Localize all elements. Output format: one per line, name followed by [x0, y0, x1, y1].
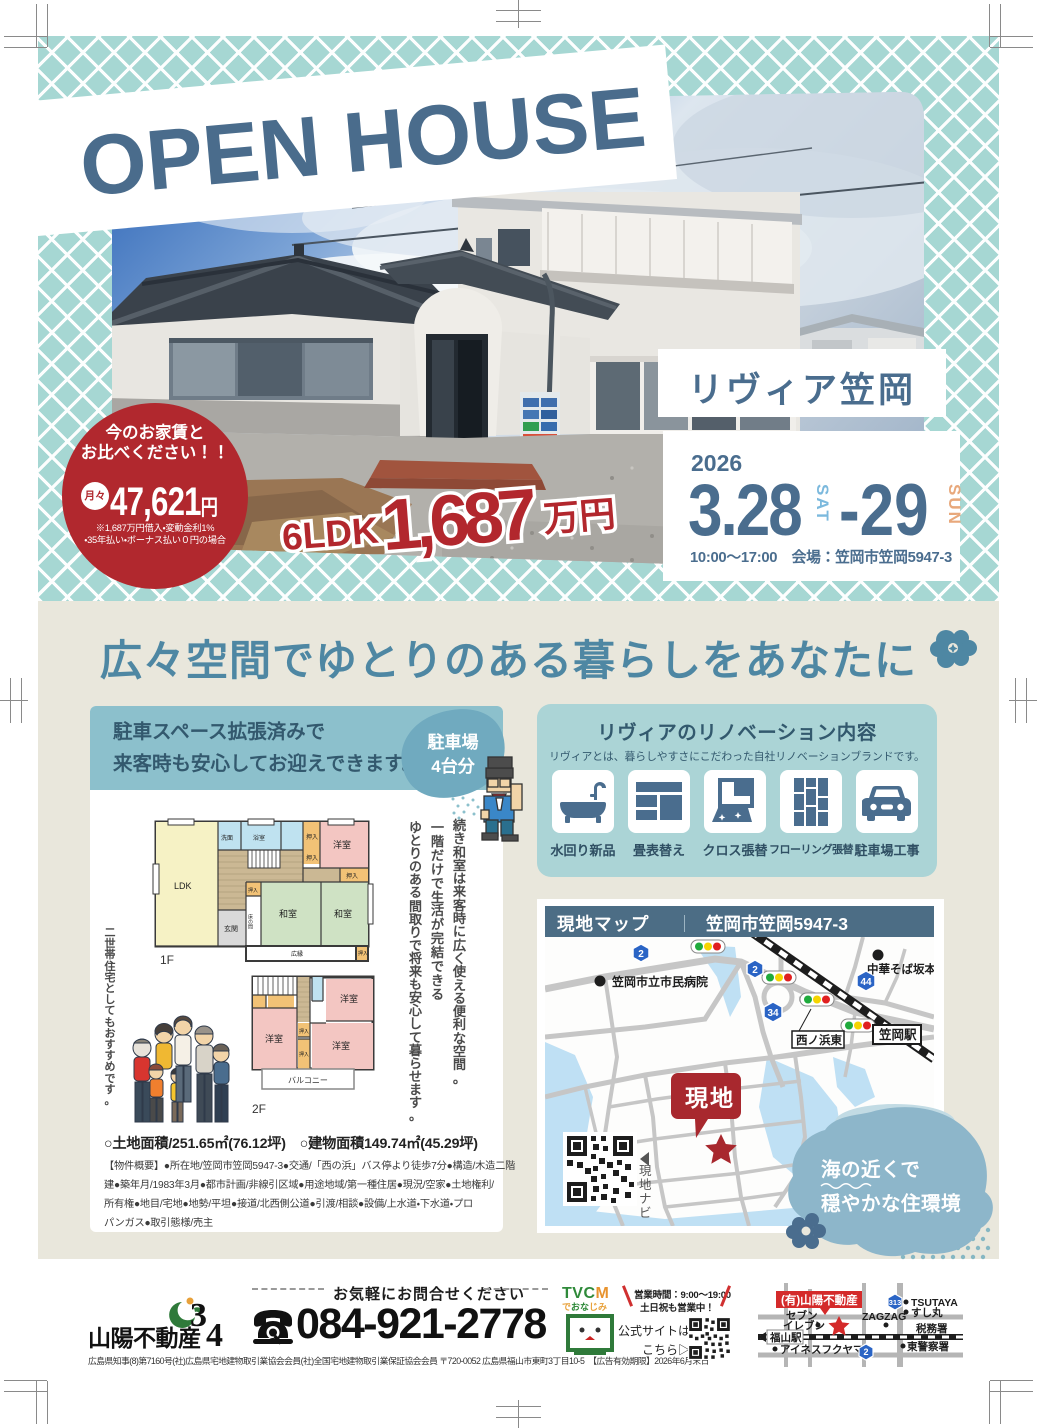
svg-text:押入: 押入 — [306, 833, 318, 841]
svg-text:税務署: 税務署 — [916, 1322, 948, 1335]
svg-text:洋室: 洋室 — [333, 839, 351, 850]
svg-text:2: 2 — [863, 1347, 868, 1357]
svg-text:4台分: 4台分 — [431, 756, 475, 776]
svg-text:押入: 押入 — [299, 1051, 309, 1058]
svg-text:洋室: 洋室 — [265, 1033, 283, 1044]
svg-text:玄関: 玄関 — [224, 924, 238, 933]
svg-text:洗面: 洗面 — [221, 834, 233, 842]
svg-text:西ノ浜東: 西ノ浜東 — [796, 1033, 842, 1047]
svg-text:44: 44 — [860, 977, 872, 988]
svg-text:すし丸: すし丸 — [911, 1306, 943, 1319]
svg-text:東警察署: 東警察署 — [907, 1340, 949, 1353]
svg-text:押入: 押入 — [299, 1028, 309, 1035]
svg-text:現地ナビ: 現地ナビ — [639, 1164, 652, 1220]
svg-text:3: 3 — [190, 1297, 207, 1334]
svg-text:和室: 和室 — [279, 908, 297, 919]
svg-text:浴室: 浴室 — [253, 834, 265, 842]
svg-text:床の間: 床の間 — [247, 914, 253, 930]
svg-text:笠岡市立市民病院: 笠岡市立市民病院 — [611, 974, 708, 989]
svg-text:福山駅: 福山駅 — [769, 1331, 802, 1344]
svg-text:押入: 押入 — [248, 887, 258, 894]
svg-text:バルコニー: バルコニー — [288, 1076, 328, 1085]
svg-text:穏やかな住環境: 穏やかな住環境 — [821, 1192, 961, 1215]
svg-text:現地: 現地 — [685, 1085, 735, 1111]
svg-text:押入: 押入 — [358, 950, 368, 957]
svg-text:ZAGZAG: ZAGZAG — [862, 1311, 906, 1323]
svg-text:TVCM: TVCM — [562, 1285, 609, 1302]
svg-text:中華そば坂本: 中華そば坂本 — [867, 962, 934, 976]
svg-text:LDK: LDK — [174, 881, 192, 891]
svg-text:1,687: 1,687 — [378, 474, 537, 566]
svg-text:押入: 押入 — [346, 872, 358, 880]
svg-text:押入: 押入 — [306, 854, 318, 862]
svg-text:2: 2 — [638, 949, 644, 960]
svg-text:34: 34 — [767, 1008, 779, 1019]
svg-text:2: 2 — [752, 965, 758, 976]
svg-text:海の近くで: 海の近くで — [821, 1158, 920, 1181]
svg-text:(有)山陽不動産: (有)山陽不動産 — [781, 1293, 858, 1307]
svg-text:313: 313 — [889, 1298, 902, 1307]
svg-text:万円: 万円 — [542, 493, 617, 540]
svg-text:6LDK: 6LDK — [281, 510, 381, 558]
svg-text:アイネスフクヤマ: アイネスフクヤマ — [780, 1344, 864, 1356]
svg-text:和室: 和室 — [334, 908, 352, 919]
svg-text:駐車場: 駐車場 — [428, 732, 479, 752]
svg-text:笠岡駅: 笠岡駅 — [878, 1027, 917, 1042]
svg-text:洋室: 洋室 — [332, 1040, 350, 1051]
svg-text:洋室: 洋室 — [340, 993, 358, 1004]
svg-text:4: 4 — [206, 1317, 223, 1350]
svg-text:広縁: 広縁 — [291, 950, 303, 958]
svg-text:でおなじみ: でおなじみ — [562, 1302, 607, 1312]
